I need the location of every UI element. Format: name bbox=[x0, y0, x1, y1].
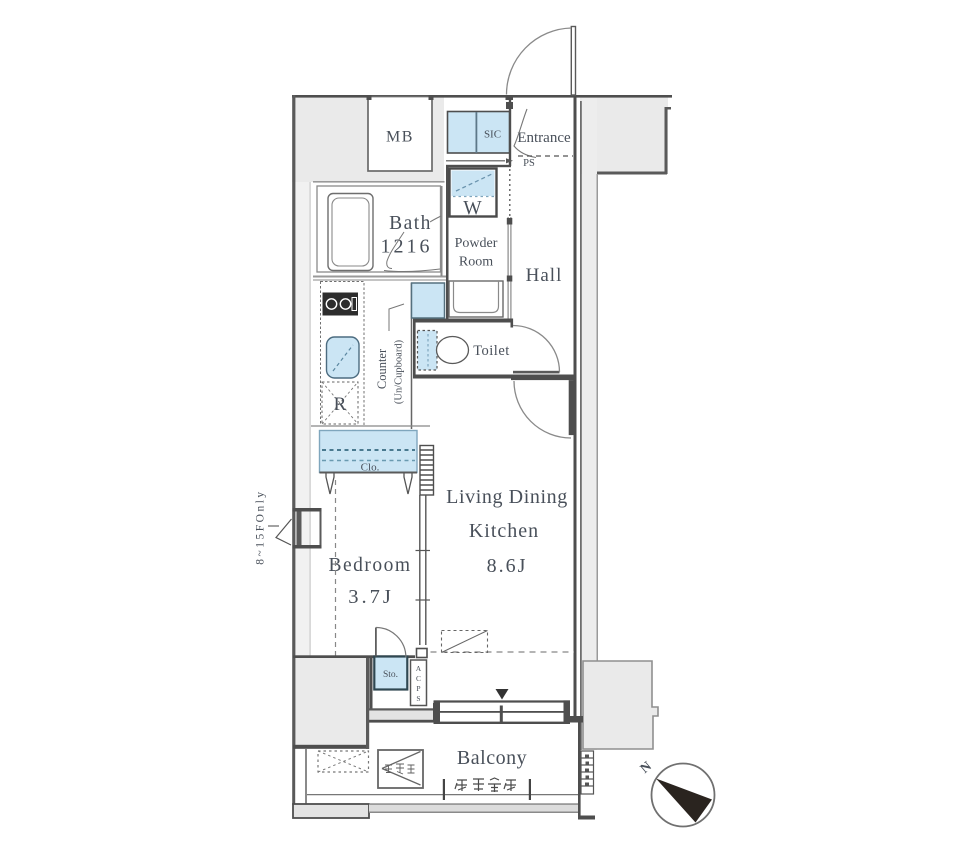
svg-text:Sto.: Sto. bbox=[383, 670, 398, 680]
svg-text:3.7J: 3.7J bbox=[348, 586, 394, 608]
svg-text:Entrance: Entrance bbox=[517, 130, 571, 146]
svg-text:SIC: SIC bbox=[484, 129, 501, 141]
svg-text:8.6J: 8.6J bbox=[487, 555, 528, 577]
svg-text:W: W bbox=[463, 198, 482, 219]
svg-text:Room: Room bbox=[459, 255, 493, 270]
svg-text:C: C bbox=[416, 674, 421, 683]
svg-text:A: A bbox=[416, 664, 422, 673]
svg-text:S: S bbox=[416, 694, 420, 703]
svg-text:Toilet: Toilet bbox=[473, 343, 510, 359]
svg-text:Kitchen: Kitchen bbox=[469, 520, 539, 542]
svg-text:(Un/Cupboard): (Un/Cupboard) bbox=[394, 339, 405, 404]
svg-text:Hall: Hall bbox=[526, 265, 563, 286]
svg-text:Counter: Counter bbox=[375, 348, 389, 389]
svg-text:PS: PS bbox=[523, 158, 535, 169]
svg-text:R: R bbox=[334, 394, 347, 415]
svg-text:1216: 1216 bbox=[381, 236, 433, 258]
svg-text:8~15FOnly: 8~15FOnly bbox=[255, 489, 267, 564]
svg-text:P: P bbox=[416, 684, 420, 693]
svg-text:Living Dining: Living Dining bbox=[446, 486, 568, 508]
svg-text:Powder: Powder bbox=[455, 236, 498, 251]
svg-text:Bath: Bath bbox=[389, 213, 432, 234]
svg-text:Bedroom: Bedroom bbox=[328, 555, 411, 576]
svg-text:MB: MB bbox=[386, 129, 414, 146]
svg-text:Balcony: Balcony bbox=[457, 747, 527, 769]
svg-text:Clo.: Clo. bbox=[361, 462, 380, 474]
